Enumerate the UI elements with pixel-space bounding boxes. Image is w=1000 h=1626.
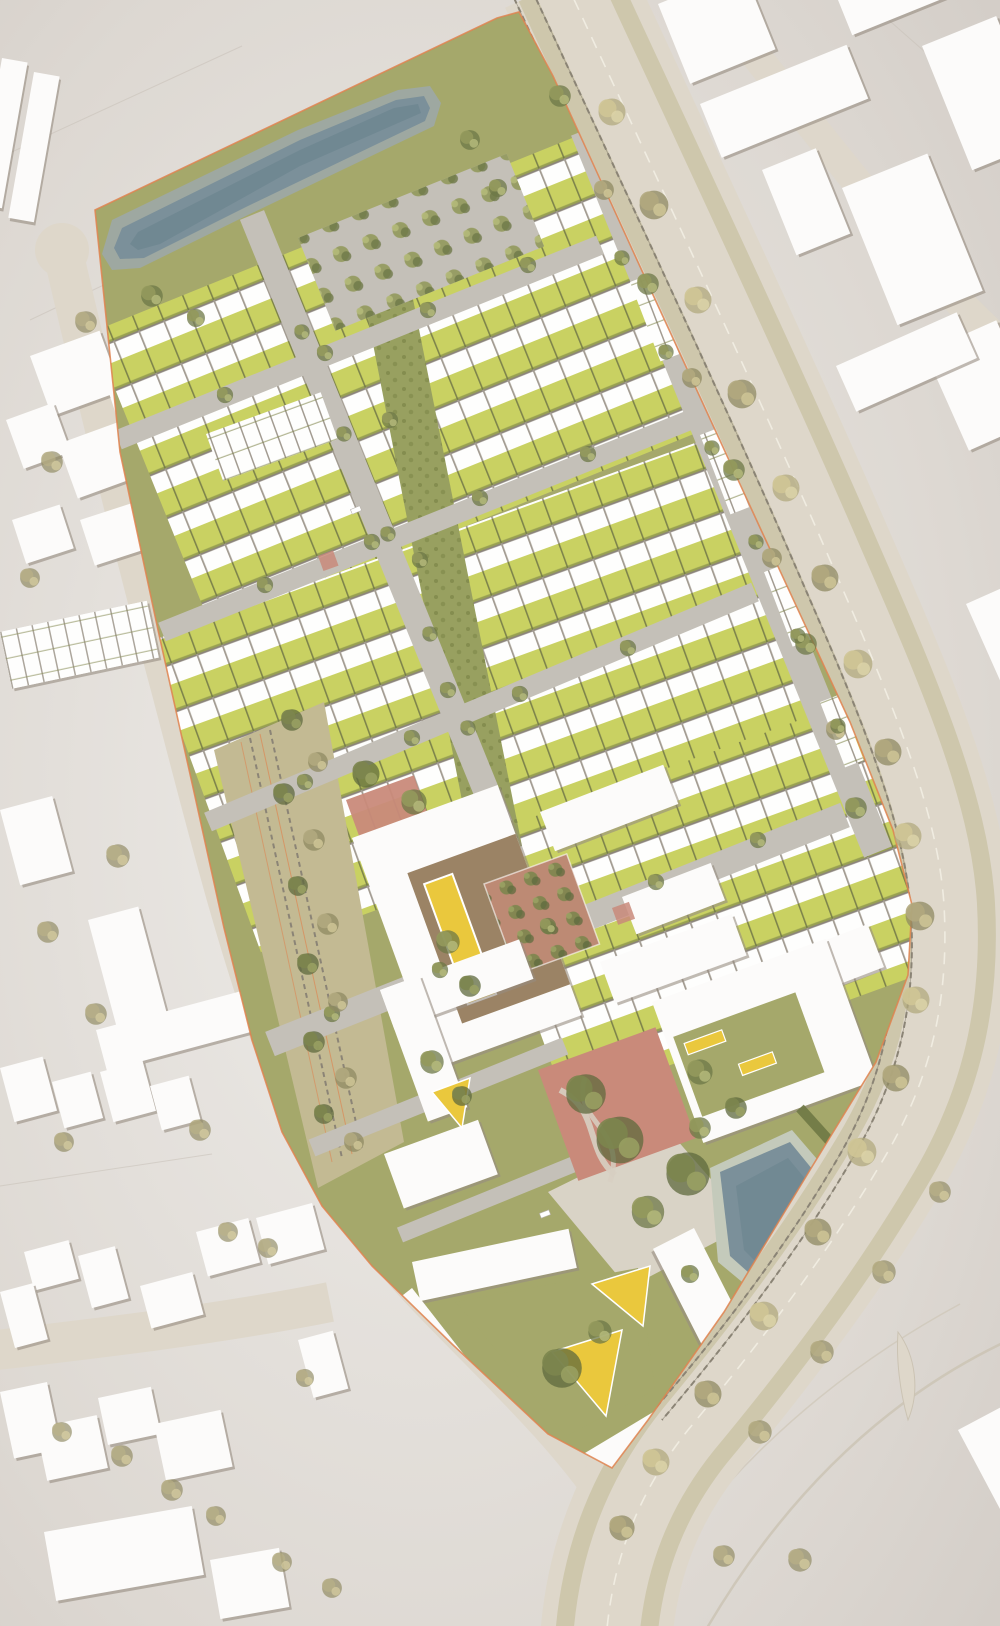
tree-icon	[805, 1219, 832, 1246]
tree-icon	[748, 534, 763, 549]
tree-icon	[106, 844, 129, 867]
tree-icon	[845, 797, 867, 819]
tree-icon	[189, 1119, 211, 1141]
tree-icon	[257, 577, 273, 593]
tree-icon	[906, 902, 935, 931]
tree-icon	[542, 1348, 582, 1388]
tree-icon	[682, 368, 702, 388]
tree-icon	[748, 1420, 771, 1443]
tree-icon	[810, 1340, 833, 1363]
tree-icon	[452, 1086, 472, 1106]
tree-icon	[322, 1578, 342, 1598]
tree-icon	[762, 548, 782, 568]
tree-icon	[41, 451, 63, 473]
tree-icon	[217, 387, 233, 403]
tree-icon	[632, 1196, 664, 1228]
tree-icon	[404, 730, 420, 746]
tree-icon	[52, 1422, 72, 1442]
tree-icon	[303, 829, 325, 851]
tree-icon	[218, 1222, 238, 1242]
tree-icon	[432, 962, 448, 978]
tree-icon	[288, 876, 308, 896]
tree-icon	[643, 1449, 670, 1476]
masterplan-stage: Aerial masterplan site plan rendering	[0, 0, 1000, 1626]
tree-icon	[296, 1369, 314, 1387]
tree-icon	[830, 718, 845, 733]
tree-icon	[812, 565, 839, 592]
tree-icon	[328, 992, 348, 1012]
tree-icon	[382, 412, 398, 428]
tree-icon	[273, 783, 295, 805]
tree-icon	[750, 1302, 779, 1331]
cul-de-sac-circle	[35, 223, 89, 277]
tree-icon	[594, 180, 614, 200]
tree-icon	[637, 273, 659, 295]
tree-icon	[364, 534, 380, 550]
tree-icon	[599, 99, 626, 126]
tree-icon	[460, 130, 480, 150]
tree-icon	[689, 1117, 711, 1139]
tree-icon	[317, 345, 333, 361]
tree-icon	[695, 1381, 722, 1408]
tree-icon	[687, 1059, 712, 1084]
tree-icon	[566, 1074, 606, 1114]
tree-icon	[459, 975, 481, 997]
tree-icon	[844, 650, 873, 679]
tree-icon	[20, 568, 40, 588]
tree-icon	[317, 913, 339, 935]
tree-icon	[297, 953, 319, 975]
tree-icon	[580, 446, 596, 462]
tree-icon	[380, 526, 395, 541]
tree-icon	[725, 1097, 747, 1119]
tree-icon	[903, 987, 930, 1014]
tree-icon	[588, 1320, 611, 1343]
tree-icon	[297, 774, 313, 790]
tree-icon	[728, 380, 757, 409]
tree-icon	[773, 475, 800, 502]
tree-icon	[281, 709, 303, 731]
tree-icon	[111, 1445, 133, 1467]
tree-icon	[335, 1067, 357, 1089]
tree-icon	[258, 1238, 278, 1258]
tree-icon	[37, 921, 59, 943]
tree-icon	[929, 1181, 951, 1203]
tree-icon	[344, 1132, 364, 1152]
tree-icon	[412, 552, 428, 568]
tree-icon	[54, 1132, 74, 1152]
tree-icon	[848, 1138, 877, 1167]
tree-icon	[883, 1065, 910, 1092]
tree-icon	[713, 1545, 735, 1567]
tree-icon	[875, 739, 902, 766]
tree-icon	[272, 1552, 292, 1572]
tree-icon	[549, 85, 571, 107]
tree-icon	[401, 789, 426, 814]
tree-icon	[141, 285, 163, 307]
tree-icon	[640, 191, 669, 220]
tree-icon	[460, 720, 475, 735]
tree-icon	[353, 761, 380, 788]
tree-icon	[540, 918, 556, 934]
tree-icon	[512, 686, 528, 702]
tree-icon	[206, 1506, 226, 1526]
tree-icon	[895, 823, 922, 850]
tree-icon	[420, 302, 436, 318]
tree-icon	[790, 628, 805, 643]
tree-icon	[620, 640, 636, 656]
tree-icon	[440, 682, 456, 698]
tree-icon	[472, 490, 488, 506]
tree-icon	[336, 426, 351, 441]
tree-icon	[658, 344, 673, 359]
tree-icon	[704, 440, 719, 455]
tree-icon	[187, 309, 205, 327]
tree-icon	[294, 324, 309, 339]
tree-icon	[314, 1104, 334, 1124]
tree-icon	[520, 257, 536, 273]
tree-icon	[614, 250, 629, 265]
tree-icon	[85, 1003, 107, 1025]
site-plan-canvas: Aerial masterplan site plan rendering	[0, 0, 1000, 1626]
tree-icon	[723, 459, 745, 481]
tree-icon	[308, 752, 328, 772]
tree-icon	[303, 1031, 325, 1053]
tree-icon	[788, 1548, 811, 1571]
tree-icon	[648, 874, 664, 890]
tree-icon	[597, 1117, 644, 1164]
tree-icon	[420, 1050, 443, 1073]
tree-icon	[681, 1265, 699, 1283]
tree-icon	[750, 832, 766, 848]
tree-icon	[436, 930, 459, 953]
tree-icon	[422, 626, 437, 641]
tree-icon	[685, 287, 712, 314]
tree-icon	[489, 179, 507, 197]
tree-icon	[609, 1515, 634, 1540]
tree-icon	[75, 311, 97, 333]
tree-icon	[872, 1260, 895, 1283]
tree-icon	[161, 1479, 183, 1501]
tree-icon	[666, 1152, 709, 1195]
